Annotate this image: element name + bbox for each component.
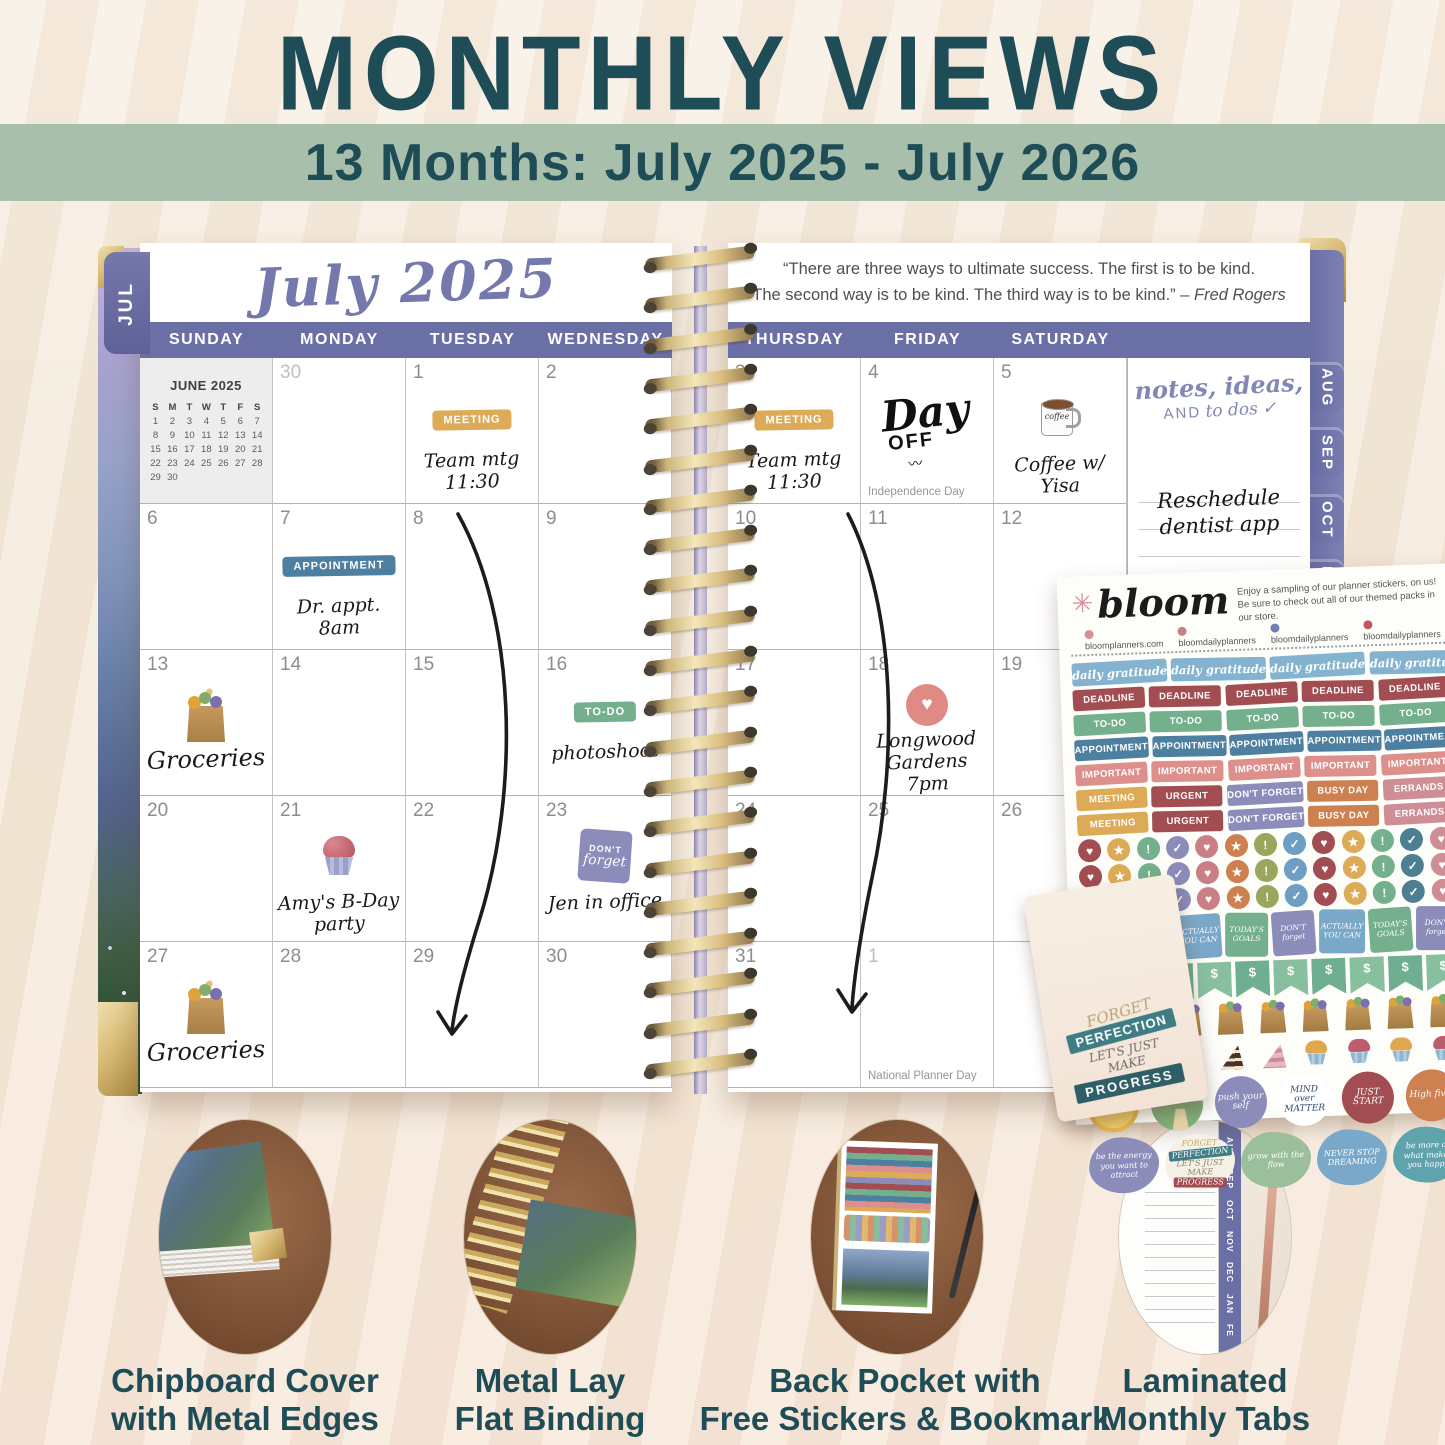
cover-landscape-thumb bbox=[841, 1248, 929, 1307]
cupcake-icon bbox=[319, 836, 359, 880]
weekday-label: SATURDAY bbox=[994, 322, 1127, 358]
holiday-label: National Planner Day bbox=[868, 1070, 977, 1082]
quote-sticker-row: be the energy you want to attractFORGETP… bbox=[1088, 1126, 1445, 1195]
sticker-rows-thumb bbox=[845, 1147, 933, 1214]
tab-month-label: DEC bbox=[1225, 1262, 1235, 1283]
label-sticker: TO-DO bbox=[1379, 701, 1445, 726]
label-sticker: IMPORTANT bbox=[1075, 762, 1148, 787]
tab-month-label: JAN bbox=[1225, 1294, 1235, 1314]
daily-gratitude-sticker: daily gratitude bbox=[1369, 650, 1445, 675]
tab-label: AUG bbox=[1319, 368, 1336, 407]
quote-sticker: grow with the flow bbox=[1240, 1131, 1312, 1189]
calendar-cell: 18♥LongwoodGardens7pm bbox=[861, 650, 994, 796]
dollar-flag-sticker: $ bbox=[1235, 960, 1270, 997]
weekday-label: TUESDAY bbox=[406, 322, 539, 358]
calendar-cell: 27Groceries bbox=[140, 942, 273, 1088]
pinterest-icon bbox=[1363, 621, 1372, 630]
date-number: 23 bbox=[546, 800, 567, 821]
dot-sticker: ♥ bbox=[1078, 839, 1102, 863]
date-number: 30 bbox=[280, 362, 301, 383]
calendar-cell: 21Amy's B-Dayparty bbox=[273, 796, 406, 942]
date-number: 30 bbox=[546, 946, 567, 967]
dot-sticker: ♥ bbox=[1431, 879, 1445, 903]
mini-calendar-title: JUNE 2025 bbox=[147, 378, 265, 393]
date-number: 21 bbox=[280, 800, 301, 821]
date-number: 27 bbox=[147, 946, 168, 967]
label-sticker: APPOINTMENT bbox=[1384, 726, 1445, 751]
social-text: bloomdailyplanners bbox=[1271, 632, 1349, 645]
caption-line: Metal Lay bbox=[475, 1362, 625, 1399]
cupcake-berry-sticker bbox=[1339, 1035, 1379, 1068]
grocery-bag-sticker bbox=[1253, 1000, 1293, 1035]
date-number: 12 bbox=[1001, 508, 1022, 529]
mini-calendar-grid: SMTWTFS123456789101112131415161718192021… bbox=[147, 400, 266, 484]
tab-oct: OCT bbox=[1310, 497, 1344, 543]
dot-sticker: ♥ bbox=[1430, 853, 1445, 877]
slice-choc-sticker bbox=[1212, 1039, 1252, 1072]
dollar-flag-sticker: $ bbox=[1311, 958, 1346, 995]
motivation-sticker: High five! bbox=[1405, 1069, 1445, 1123]
date-number: 28 bbox=[280, 946, 301, 967]
daily-gratitude-sticker: daily gratitude bbox=[1270, 652, 1366, 680]
label-sticker: APPOINTMENT bbox=[1152, 735, 1226, 757]
tab-aug: AUG bbox=[1310, 365, 1344, 411]
motivation-sticker: MIND over MATTER bbox=[1278, 1073, 1332, 1127]
dot-sticker: ♥ bbox=[1313, 857, 1337, 881]
dot-sticker: ✓ bbox=[1166, 836, 1190, 860]
label-sticker: DON'T FORGET bbox=[1227, 781, 1304, 806]
date-number: 2 bbox=[546, 362, 557, 383]
tab-month-label: FE bbox=[1225, 1324, 1235, 1337]
dot-sticker: ♥ bbox=[1314, 883, 1338, 907]
quote-sticker: be more of what makes you happy bbox=[1392, 1126, 1445, 1184]
dot-sticker: ! bbox=[1372, 855, 1396, 879]
dot-sticker: ♥ bbox=[1196, 861, 1220, 885]
planner-cover-photo bbox=[515, 1199, 636, 1310]
month-title: July 2025 bbox=[140, 243, 672, 322]
cupcake-berry-sticker bbox=[1424, 1032, 1445, 1065]
label-sticker: ERRANDS bbox=[1383, 801, 1445, 826]
grocery-bag-sticker bbox=[1211, 1001, 1251, 1036]
date-number: 5 bbox=[1001, 362, 1012, 383]
weekday-label: MONDAY bbox=[273, 322, 406, 358]
grocery-bag-sticker bbox=[1423, 994, 1445, 1029]
square-sticker: DON'T forget bbox=[1271, 910, 1317, 957]
calendar-cell: 11 bbox=[861, 504, 994, 650]
dot-sticker: ! bbox=[1371, 829, 1395, 853]
label-sticker: DEADLINE bbox=[1378, 676, 1445, 701]
planner-with-stickers-photo bbox=[836, 1140, 938, 1313]
dot-sticker: ! bbox=[1255, 885, 1279, 909]
square-sticker: DON'T forget bbox=[1416, 907, 1445, 951]
grocery-bag-sticker bbox=[1296, 998, 1336, 1033]
dot-sticker: ★ bbox=[1225, 860, 1249, 884]
coffee-mug-icon: coffee bbox=[1037, 394, 1083, 438]
grocery-bag-sticker bbox=[1381, 995, 1421, 1030]
pen bbox=[949, 1181, 983, 1299]
calendar-cell: 4DayOFF〰Independence Day bbox=[861, 358, 994, 504]
grocery-bag-icon bbox=[184, 986, 228, 1034]
dot-sticker: ★ bbox=[1342, 856, 1366, 880]
date-number: 4 bbox=[868, 362, 879, 383]
dot-sticker: ♥ bbox=[1312, 831, 1336, 855]
caption-line: Flat Binding bbox=[455, 1400, 646, 1437]
feature-caption-1: Chipboard Cover with Metal Edges bbox=[80, 1362, 410, 1439]
calendar-cell: 22 bbox=[406, 796, 539, 942]
dot-sticker: ! bbox=[1253, 833, 1277, 857]
sticker-dots-thumb bbox=[844, 1215, 931, 1244]
motivation-sticker: JUST START bbox=[1341, 1071, 1395, 1125]
handwritten-entry: Coffee w/Yisa bbox=[993, 452, 1126, 500]
dot-sticker: ✓ bbox=[1400, 828, 1424, 852]
label-sticker: TO-DO bbox=[1303, 705, 1376, 727]
tab-month-label: OCT bbox=[1225, 1200, 1235, 1221]
calendar-cell: 28 bbox=[273, 942, 406, 1088]
weekday-label: SUNDAY bbox=[140, 322, 273, 358]
label-sticker: ERRANDS bbox=[1382, 776, 1445, 801]
date-number: 7 bbox=[280, 508, 291, 529]
handwritten-note: Rescheduledentist app bbox=[1127, 483, 1311, 542]
social-text: bloomdailyplanners bbox=[1363, 629, 1441, 642]
handwritten-entry: Amy's B-Dayparty bbox=[272, 890, 405, 938]
label-sticker: DEADLINE bbox=[1225, 682, 1298, 707]
label-sticker: MEETING bbox=[1077, 812, 1149, 837]
weekday-label: FRIDAY bbox=[861, 322, 994, 358]
mini-calendar-june: JUNE 2025SMTWTFS123456789101112131415161… bbox=[147, 362, 265, 484]
label-sticker: IMPORTANT bbox=[1228, 756, 1301, 781]
facebook-icon bbox=[1270, 624, 1279, 633]
calendar-cell: 20 bbox=[140, 796, 273, 942]
date-number: 25 bbox=[868, 800, 889, 821]
label-sticker: BUSY DAY bbox=[1307, 780, 1379, 802]
date-number: 9 bbox=[546, 508, 557, 529]
daily-gratitude-sticker: daily gratitude bbox=[1071, 659, 1167, 687]
date-number: 14 bbox=[280, 654, 301, 675]
feature-photo-back-pocket bbox=[811, 1120, 983, 1354]
date-number: 31 bbox=[735, 946, 756, 967]
tab-month-label: NOV bbox=[1225, 1231, 1235, 1252]
date-number: 29 bbox=[413, 946, 434, 967]
dot-sticker: ✓ bbox=[1401, 854, 1425, 878]
subtitle-text: 13 Months: July 2025 - July 2026 bbox=[305, 133, 1140, 193]
label-sticker: TO-DO bbox=[1150, 711, 1223, 733]
notes-title-and: AND bbox=[1163, 404, 1202, 423]
quote-sticker: NEVER STOP DREAMING bbox=[1316, 1128, 1388, 1186]
quote-line2: The second way is to be kind. The third … bbox=[752, 283, 1285, 309]
social-link: bloomdailyplanners bbox=[1363, 618, 1445, 642]
dont-forget-sticker: DON'Tforget bbox=[577, 828, 633, 884]
handwritten-entry: Team mtg11:30 bbox=[405, 448, 538, 496]
date-number: 20 bbox=[147, 800, 168, 821]
label-sticker: DON'T FORGET bbox=[1227, 806, 1304, 831]
date-number: 15 bbox=[413, 654, 434, 675]
cupcake-gold-sticker bbox=[1297, 1036, 1337, 1069]
page-title: MONTHLY VIEWS bbox=[0, 14, 1445, 135]
caption-line: Chipboard Cover bbox=[111, 1362, 379, 1399]
feature-photo-chipboard-cover bbox=[159, 1120, 331, 1354]
dot-sticker: ✓ bbox=[1402, 880, 1426, 904]
dot-sticker: ★ bbox=[1107, 838, 1131, 862]
label-sticker: MEETING bbox=[754, 409, 833, 430]
day-off-handwriting: DayOFF〰 bbox=[857, 381, 997, 478]
feature-caption-2: Metal Lay Flat Binding bbox=[385, 1362, 715, 1439]
calendar-grid-left: JUNE 2025SMTWTFS123456789101112131415161… bbox=[140, 358, 672, 1088]
date-number: 1 bbox=[868, 946, 879, 967]
date-number: 22 bbox=[413, 800, 434, 821]
notes-header-art: notes, ideas, AND to dos ✓ bbox=[1126, 353, 1311, 429]
dot-sticker: ★ bbox=[1343, 882, 1367, 906]
date-number: 16 bbox=[546, 654, 567, 675]
tab-sep: SEP bbox=[1310, 430, 1344, 476]
label-sticker: IMPORTANT bbox=[1152, 761, 1225, 783]
dollar-flag-sticker: $ bbox=[1273, 959, 1308, 996]
label-sticker: APPOINTMENT bbox=[1074, 737, 1149, 762]
heart-sticker: ♥ bbox=[906, 684, 948, 726]
social-text: bloomdailyplanners bbox=[1178, 636, 1256, 649]
dollar-flag-sticker: $ bbox=[1388, 955, 1423, 992]
flower-icon bbox=[1084, 630, 1093, 639]
dot-sticker: ✓ bbox=[1285, 884, 1309, 908]
dollar-flag-sticker: $ bbox=[1349, 956, 1384, 993]
date-number: 6 bbox=[147, 508, 158, 529]
caption-line: Laminated bbox=[1122, 1362, 1287, 1399]
month-title-text: July 2025 bbox=[253, 245, 559, 320]
bloom-logo: bloom bbox=[1097, 581, 1230, 624]
bloom-flower-icon: ✳ bbox=[1071, 590, 1094, 617]
dot-sticker: ! bbox=[1372, 881, 1396, 905]
label-sticker: URGENT bbox=[1152, 786, 1224, 808]
notes-title-line2: to dos bbox=[1205, 399, 1258, 422]
label-sticker: TO-DO bbox=[1226, 707, 1299, 732]
tab-label: SEP bbox=[1319, 435, 1336, 471]
dot-sticker: ♥ bbox=[1195, 835, 1219, 859]
quote-line1: “There are three ways to ultimate succes… bbox=[783, 257, 1255, 283]
dollar-flag-sticker: $ bbox=[1426, 954, 1445, 991]
feature-photo-metal-binding bbox=[464, 1120, 636, 1354]
holiday-label: Independence Day bbox=[868, 486, 965, 498]
quote-block: “There are three ways to ultimate succes… bbox=[728, 243, 1310, 322]
tab-jul-label: JUL bbox=[116, 281, 138, 326]
square-sticker: TODAY'S GOALS bbox=[1225, 913, 1268, 957]
metal-edge bbox=[249, 1228, 287, 1262]
label-sticker: IMPORTANT bbox=[1304, 755, 1377, 777]
handwritten-entry: Groceries bbox=[140, 744, 273, 776]
label-sticker: APPOINTMENT bbox=[1229, 731, 1304, 756]
label-sticker: APPOINTMENT bbox=[1307, 730, 1381, 752]
caption-line: with Metal Edges bbox=[111, 1400, 379, 1437]
weekday-header-left: SUNDAYMONDAYTUESDAYWEDNESDAY bbox=[140, 322, 672, 358]
label-sticker: URGENT bbox=[1152, 811, 1224, 833]
checkmark-icon: ✓ bbox=[1262, 398, 1277, 419]
grocery-bag-icon bbox=[184, 694, 228, 742]
instagram-icon bbox=[1178, 627, 1187, 636]
label-sticker: MEETING bbox=[1076, 787, 1148, 812]
product-image: MONTHLY VIEWS 13 Months: July 2025 - Jul… bbox=[0, 0, 1445, 1445]
planner-cover-edge bbox=[98, 248, 142, 1094]
label-sticker: DEADLINE bbox=[1149, 686, 1222, 708]
dot-sticker: ! bbox=[1254, 859, 1278, 883]
calendar-cell: 25 bbox=[861, 796, 994, 942]
notes-lines-thumb bbox=[1145, 1180, 1215, 1330]
square-sticker: TODAY'S GOALS bbox=[1368, 907, 1414, 954]
calendar-cell: 14 bbox=[273, 650, 406, 796]
label-sticker: TO-DO bbox=[574, 701, 637, 722]
subtitle-banner: 13 Months: July 2025 - July 2026 bbox=[0, 124, 1445, 201]
dot-sticker: ✓ bbox=[1284, 858, 1308, 882]
social-link: bloomdailyplanners bbox=[1270, 621, 1356, 645]
motivation-sticker: push your self bbox=[1214, 1076, 1268, 1130]
calendar-cell: 8 bbox=[406, 504, 539, 650]
calendar-cell: 6 bbox=[140, 504, 273, 650]
calendar-cell: 13Groceries bbox=[140, 650, 273, 796]
handwritten-entry: Groceries bbox=[140, 1036, 273, 1068]
caption-line: Monthly Tabs bbox=[1100, 1400, 1310, 1437]
calendar-cell: 30 bbox=[273, 358, 406, 504]
slice-pink-sticker bbox=[1255, 1038, 1295, 1071]
tab-label: OCT bbox=[1319, 501, 1336, 539]
date-number: 19 bbox=[1001, 654, 1022, 675]
quote-attribution: Fred Rogers bbox=[1194, 286, 1286, 304]
quote-sticker: be the energy you want to attract bbox=[1088, 1136, 1160, 1194]
grocery-bag-sticker bbox=[1338, 997, 1378, 1032]
calendar-cell: 15 bbox=[406, 650, 539, 796]
label-sticker: DEADLINE bbox=[1072, 687, 1145, 712]
dot-sticker: ! bbox=[1136, 837, 1160, 861]
social-link: bloomdailyplanners bbox=[1178, 624, 1264, 648]
label-sticker: DEADLINE bbox=[1302, 680, 1375, 702]
date-number: 11 bbox=[868, 508, 888, 529]
quote-sticker: FORGETPERFECTIONLET'S JUST MAKEPROGRESS bbox=[1164, 1134, 1236, 1192]
calendar-cell: 1National Planner Day bbox=[861, 942, 994, 1088]
date-number: 8 bbox=[413, 508, 424, 529]
feature-caption-4: Laminated Monthly Tabs bbox=[1040, 1362, 1370, 1439]
calendar-cell: JUNE 2025SMTWTFS123456789101112131415161… bbox=[140, 358, 273, 504]
calendar-cell: 29 bbox=[406, 942, 539, 1088]
daily-gratitude-sticker: daily gratitude bbox=[1171, 657, 1267, 682]
dot-sticker: ★ bbox=[1224, 834, 1248, 858]
dollar-flag-sticker: $ bbox=[1197, 962, 1232, 999]
calendar-cell: 5coffeeCoffee w/Yisa bbox=[994, 358, 1127, 504]
handwritten-entry: LongwoodGardens7pm bbox=[860, 728, 994, 798]
dot-sticker: ★ bbox=[1226, 886, 1250, 910]
date-number: 26 bbox=[1001, 800, 1022, 821]
label-sticker: APPOINTMENT bbox=[282, 555, 395, 577]
calendar-cell: 7APPOINTMENTDr. appt.8am bbox=[273, 504, 406, 650]
label-sticker: IMPORTANT bbox=[1380, 751, 1445, 776]
date-number: 1 bbox=[413, 362, 424, 383]
handwritten-entry: Dr. appt.8am bbox=[272, 594, 405, 642]
caption-line: Back Pocket with bbox=[769, 1362, 1040, 1399]
quote-line2-text: The second way is to be kind. The third … bbox=[752, 286, 1189, 304]
label-sticker: TO-DO bbox=[1073, 712, 1146, 737]
dot-sticker: ✓ bbox=[1283, 832, 1307, 856]
dot-sticker: ♥ bbox=[1429, 827, 1445, 851]
dot-sticker: ★ bbox=[1341, 830, 1365, 854]
date-number: 18 bbox=[868, 654, 889, 675]
label-sticker: BUSY DAY bbox=[1308, 805, 1380, 827]
weekday-header-right: THURSDAYFRIDAYSATURDAY bbox=[728, 322, 1310, 358]
square-sticker: ACTUALLY YOU CAN bbox=[1319, 910, 1365, 954]
metal-corner-bottom-left bbox=[98, 1002, 138, 1096]
dot-sticker: ♥ bbox=[1197, 887, 1221, 911]
social-text: bloomplanners.com bbox=[1085, 639, 1164, 652]
calendar-cell: 1MEETINGTeam mtg11:30 bbox=[406, 358, 539, 504]
sticker-sheet-tagline: Enjoy a sampling of our planner stickers… bbox=[1236, 576, 1445, 625]
social-link: bloomplanners.com bbox=[1084, 628, 1171, 652]
label-sticker: MEETING bbox=[432, 409, 511, 430]
date-number: 13 bbox=[147, 654, 168, 675]
cupcake-gold-sticker bbox=[1382, 1033, 1422, 1066]
planner-left-page: July 2025 SUNDAYMONDAYTUESDAYWEDNESDAY J… bbox=[140, 243, 672, 1092]
tab-jul: JUL bbox=[104, 252, 150, 354]
